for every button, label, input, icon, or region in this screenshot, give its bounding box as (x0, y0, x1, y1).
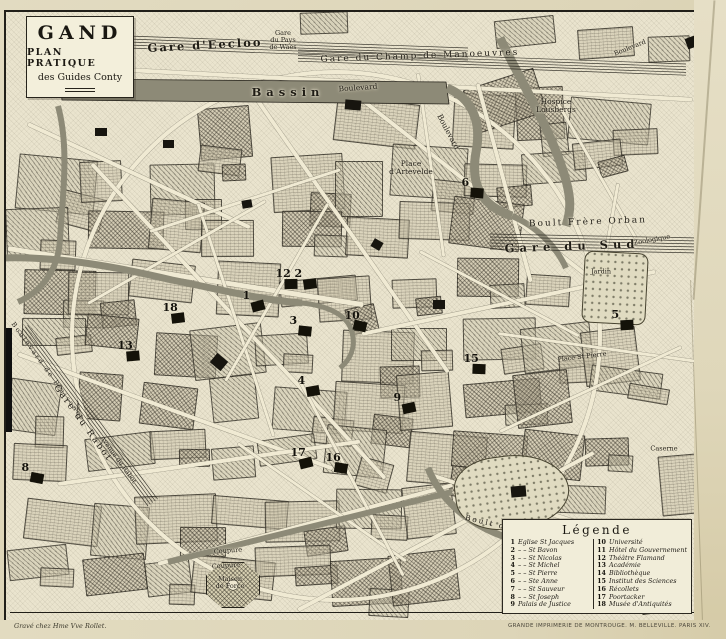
map-plate: GAND PLAN PRATIQUE des Guides Conty Lége… (4, 10, 696, 622)
building-icon (353, 320, 368, 333)
map-marker: 16 (335, 463, 348, 473)
building-icon (334, 462, 348, 474)
map-world: GAND PLAN PRATIQUE des Guides Conty Lége… (4, 10, 696, 622)
title-rule (65, 88, 95, 92)
marker-number: 4 (298, 374, 306, 387)
legend-entry-label: Palais de Justice (518, 601, 571, 609)
map-marker: 10 (354, 321, 367, 331)
building-icon (95, 128, 107, 136)
legend-entry-number: 9 (506, 601, 515, 609)
map-marker: 1 (252, 301, 265, 311)
map-marker: 3 (299, 326, 312, 336)
legend-col-right: 10Université11Hôtel du Gouvernement12Thé… (597, 539, 688, 609)
map-label: Maison de Force (216, 576, 245, 590)
title-box: GAND PLAN PRATIQUE des Guides Conty (26, 16, 134, 98)
building-icon (472, 364, 485, 374)
map-marker: 5 (621, 320, 634, 330)
map-label: Hospice Lousbergs (536, 98, 576, 114)
legend-col-left: 1Eglise St Jacques2– – St Bavon3– – St N… (506, 539, 590, 609)
scanned-map-page: GAND PLAN PRATIQUE des Guides Conty Lége… (0, 0, 726, 639)
marker-number: 6 (462, 176, 470, 189)
marker-number: 1 (243, 289, 251, 302)
building-icon (620, 320, 634, 331)
map-label: Place d'Artevelde (389, 160, 433, 176)
marker-number: 9 (394, 391, 402, 404)
map-label: Gare du Pays de Waes (269, 30, 296, 50)
map-label: Jardin (591, 269, 611, 276)
building-icon (284, 279, 297, 289)
map-label: Bassin (252, 86, 325, 98)
legend-entry: 9Palais de Justice (506, 601, 590, 609)
map-marker: 9 (403, 403, 416, 413)
building-icon (241, 199, 252, 209)
building-icon (250, 299, 265, 312)
building-icon (163, 140, 174, 148)
building-icon (303, 278, 317, 290)
waterways (4, 38, 670, 582)
map-marker: 12 (285, 279, 298, 289)
building-icon (30, 472, 45, 484)
legend-entry: 18Musée d'Antiquités (597, 601, 688, 609)
building-icon (433, 300, 445, 309)
building-icon (402, 402, 417, 414)
printer-imprint: GRANDE IMPRIMERIE DE MONTROUGE. M. BELLE… (508, 623, 711, 629)
map-subtitle: PLAN PRATIQUE (27, 47, 133, 69)
map-marker: 4 (307, 386, 320, 396)
map-title: GAND (38, 22, 123, 44)
building-icon (345, 99, 362, 110)
map-marker: 17 (300, 458, 313, 468)
building-icon (171, 312, 185, 324)
building-icon (470, 188, 484, 199)
marker-number: 18 (163, 301, 178, 314)
legend-title: Légende (503, 523, 691, 537)
legend-columns: 1Eglise St Jacques2– – St Bavon3– – St N… (503, 539, 691, 609)
marker-number: 5 (612, 308, 620, 321)
building-icon (298, 325, 312, 336)
marker-number: 3 (290, 314, 298, 327)
marker-number: 13 (118, 339, 133, 352)
building-icon (511, 485, 527, 497)
legend-entry-number: 18 (597, 601, 606, 609)
marker-number: 8 (22, 461, 30, 474)
building-icon (126, 350, 140, 361)
scan-edge-artifact (6, 328, 12, 432)
map-marker: 6 (471, 188, 484, 198)
map-marker: 8 (31, 473, 44, 483)
legend-box: Légende 1Eglise St Jacques2– – St Bavon3… (502, 519, 692, 614)
engraver-credit: Gravé chez Hme Vve Rollet. (14, 622, 106, 630)
legend-entry-label: Musée d'Antiquités (609, 601, 672, 609)
map-marker: 18 (172, 313, 185, 323)
map-edition: des Guides Conty (38, 72, 122, 83)
map-marker: 13 (127, 351, 140, 361)
legend-divider (593, 539, 594, 609)
marker-number: 17 (291, 446, 306, 459)
map-label: Caserne (650, 446, 677, 453)
map-marker: 2 (304, 279, 317, 289)
map-marker: 15 (473, 364, 486, 374)
building-icon (306, 385, 321, 397)
building-icon (298, 457, 313, 470)
